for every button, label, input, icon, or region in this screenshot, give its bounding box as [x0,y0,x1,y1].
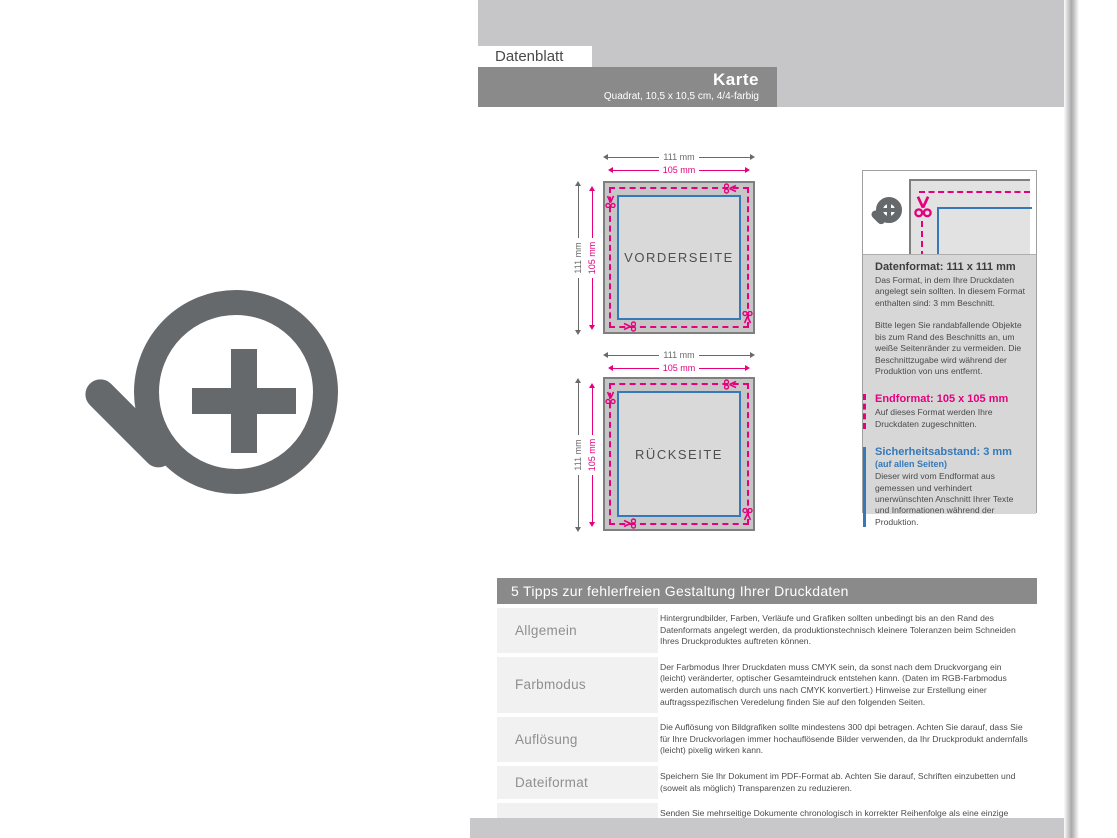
dimension-outer-height: 111 mm [573,378,583,532]
table-row: Allgemein Hintergrundbilder, Farben, Ver… [497,608,1037,653]
scissors-icon [724,378,737,391]
plus-icon [231,349,257,453]
endformat-section: Endformat: 105 x 105 mm Auf dieses Forma… [875,393,1028,430]
datenformat-title: Datenformat: 111 x 111 mm [875,261,1028,273]
datenblatt-tab: Datenblatt [478,46,592,68]
page-title: Karte [478,70,759,90]
scissors-icon [741,311,754,324]
scissors-icon [623,517,636,530]
sicherheitsabstand-section: Sicherheitsabstand: 3 mm (auf allen Seit… [875,446,1028,528]
tip-label: Dateiformat [497,766,658,799]
sicherheitsabstand-subtitle: (auf allen Seiten) [875,459,1028,469]
datasheet-page: Datenblatt Karte Quadrat, 10,5 x 10,5 cm… [0,0,1117,838]
back-diagram: 111 mm 105 mm 111 mm 105 mm [570,348,770,543]
trim-line [919,191,1030,193]
dimension-outer-width: 111 mm [603,350,755,360]
back-side-label: RÜCKSEITE [635,447,723,462]
tip-text: Der Farbmodus Ihrer Druckdaten muss CMYK… [658,657,1037,713]
datenformat-paragraph: Bitte legen Sie randabfallende Objekte b… [875,320,1028,377]
dimension-trim-height: 105 mm [587,186,597,330]
dimension-label: 111 mm [663,350,694,360]
table-row: Dateiformat Speichern Sie Ihr Dokument i… [497,766,1037,799]
format-info-box: Datenformat: 111 x 111 mm Das Format, in… [862,170,1037,513]
dimension-outer-width: 111 mm [603,152,755,162]
format-info-text: Datenformat: 111 x 111 mm Das Format, in… [863,254,1036,514]
table-row: Auflösung Die Auflösung von Bildgrafiken… [497,717,1037,762]
sicherheitsabstand-paragraph: Dieser wird vom Endformat aus gemessen u… [875,471,1028,528]
dimension-label: 111 mm [573,242,583,273]
dimension-trim-width: 105 mm [608,165,750,175]
safety-area: VORDERSEITE [617,195,741,320]
safety-area: RÜCKSEITE [617,391,741,517]
zoom-plus-icon [112,288,372,558]
footer-band [470,818,1064,838]
dimension-label: 105 mm [663,165,696,175]
table-row: Farbmodus Der Farbmodus Ihrer Druckdaten… [497,657,1037,713]
bleed-area: RÜCKSEITE [603,377,755,531]
plus-icon [887,203,891,217]
tip-label: Auflösung [497,717,658,762]
scissors-icon [741,508,754,521]
scissors-icon [724,182,737,195]
dimension-label: 111 mm [663,152,694,162]
safety-line [937,207,1032,254]
dimension-outer-height: 111 mm [573,181,583,335]
bleed-area: VORDERSEITE [603,181,755,334]
corner-illustration [863,171,1036,254]
tip-text: Hintergrundbilder, Farben, Verläufe und … [658,608,1037,653]
front-diagram: 111 mm 105 mm 111 mm 105 mm [570,150,770,345]
dimension-label: 111 mm [573,439,583,470]
dimension-label: 105 mm [587,439,597,472]
scissors-icon [604,195,617,208]
dimension-trim-width: 105 mm [608,363,750,373]
tip-label: Allgemein [497,608,658,653]
datenformat-paragraph: Das Format, in dem Ihre Druckdaten angel… [875,275,1028,309]
scissors-icon [912,193,934,219]
page-edge-shadow [1064,0,1079,838]
endformat-title: Endformat: 105 x 105 mm [875,393,1028,405]
trim-line [921,221,923,254]
datenblatt-tab-label: Datenblatt [495,48,563,65]
zoom-plus-icon-small [870,197,908,237]
dimension-label: 105 mm [663,363,696,373]
dimension-trim-height: 105 mm [587,383,597,527]
tips-title: 5 Tipps zur fehlerfreien Gestaltung Ihre… [497,578,1037,604]
front-side-label: VORDERSEITE [624,250,734,265]
dimension-label: 105 mm [587,242,597,275]
page-subtitle: Quadrat, 10,5 x 10,5 cm, 4/4-farbig [478,91,759,102]
endformat-paragraph: Auf dieses Format werden Ihre Druckdaten… [875,407,1028,430]
scissors-icon [604,391,617,404]
product-title-bar: Karte Quadrat, 10,5 x 10,5 cm, 4/4-farbi… [478,67,777,107]
card-corner-zoom [909,179,1030,254]
tip-label: Farbmodus [497,657,658,713]
tip-text: Speichern Sie Ihr Dokument im PDF-Format… [658,766,1037,799]
datenformat-section: Datenformat: 111 x 111 mm Das Format, in… [875,261,1028,377]
tip-text: Die Auflösung von Bildgrafiken sollte mi… [658,717,1037,762]
sicherheitsabstand-title: Sicherheitsabstand: 3 mm [875,446,1028,458]
scissors-icon [623,320,636,333]
tips-section: 5 Tipps zur fehlerfreien Gestaltung Ihre… [497,578,1037,838]
